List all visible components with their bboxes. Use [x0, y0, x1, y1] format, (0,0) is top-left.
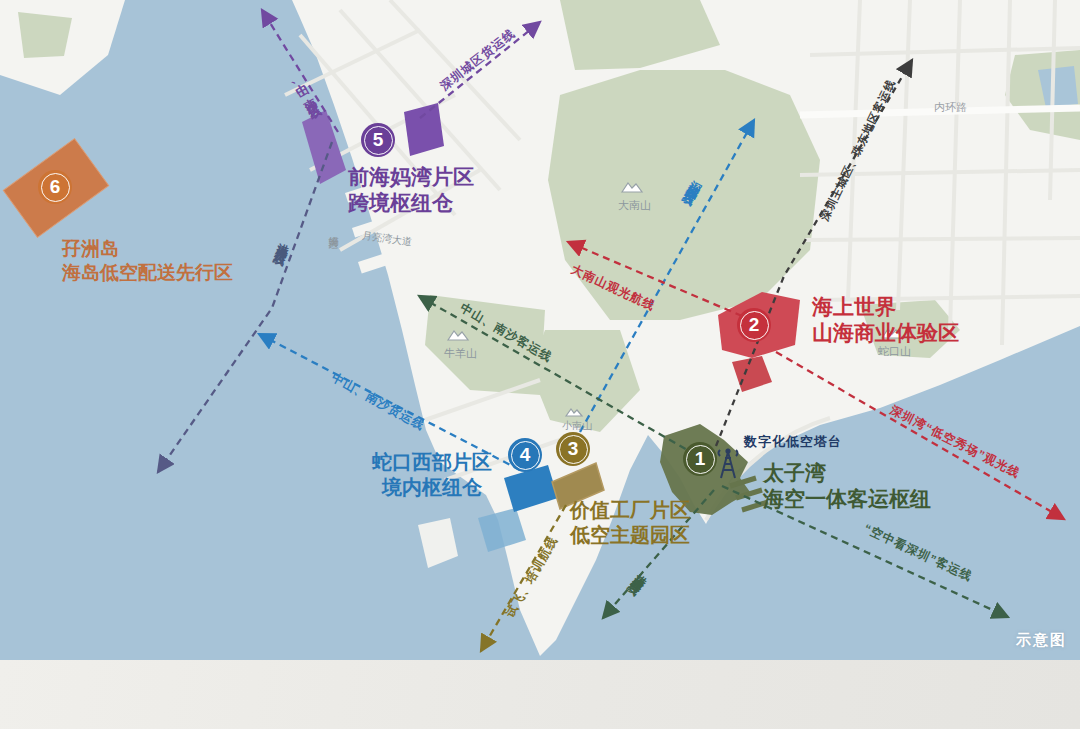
schematic-map: 1 2 3 4 5 6 太子湾 海空一体客运枢纽 海上世界 山海商业体验区 价值… [0, 0, 1080, 729]
map-label-niuyangshan: 牛羊山 [444, 346, 477, 361]
zone1-number: 1 [695, 448, 706, 470]
schematic-watermark: 示意图 [1016, 631, 1067, 650]
zone1-label-line1: 太子湾 [763, 460, 931, 486]
zone1-label: 太子湾 海空一体客运枢纽 [763, 460, 931, 512]
map-label-danangshan: 大南山 [618, 198, 651, 213]
map-label-xiaonanshan: 小南山 [562, 419, 592, 433]
footer-bar: △ 先导区发展布局蓝图 [0, 660, 1080, 729]
zone2-label-line2: 山海商业体验区 [812, 320, 959, 346]
zone4-label-line1: 蛇口西部片区 [372, 450, 492, 475]
zone4-label: 蛇口西部片区 境内枢纽仓 [372, 450, 492, 500]
zone1-label-line2: 海空一体客运枢纽 [763, 486, 931, 512]
zone3-number: 3 [568, 438, 579, 460]
digital-tower-label: 数字化低空塔台 [744, 433, 842, 451]
map-label-neihuanlu: 内环路 [934, 100, 967, 115]
zone5-label: 前海妈湾片区 跨境枢纽仓 [348, 164, 474, 216]
zone3-badge: 3 [556, 432, 590, 466]
zone4-badge: 4 [508, 438, 542, 472]
zone1-badge: 1 [683, 442, 717, 476]
island-topleft-green [18, 12, 72, 58]
map-label-shekoushan: 蛇口山 [878, 344, 911, 359]
zone2-number: 2 [749, 314, 760, 336]
zone6-label: 孖洲岛 海岛低空配送先行区 [62, 237, 233, 284]
zone3-label-line1: 价值工厂片区 [570, 498, 690, 523]
zone6-badge: 6 [38, 170, 72, 204]
zone5-number: 5 [373, 129, 384, 151]
zone2-label-line1: 海上世界 [812, 294, 959, 320]
zone6-label-line1: 孖洲岛 [62, 237, 233, 261]
zone3-label-line2: 低空主题园区 [570, 523, 690, 548]
zone2-label: 海上世界 山海商业体验区 [812, 294, 959, 346]
zone2-badge: 2 [737, 308, 771, 342]
zone5-badge: 5 [361, 123, 395, 157]
zone5-label-line2: 跨境枢纽仓 [348, 190, 474, 216]
zone6-label-line2: 海岛低空配送先行区 [62, 261, 233, 285]
zone3-label: 价值工厂片区 低空主题园区 [570, 498, 690, 548]
zone5-label-line1: 前海妈湾片区 [348, 164, 474, 190]
map-label-mawandadao: 妈湾大道 [326, 228, 340, 232]
zone4-label-line2: 境内枢纽仓 [372, 475, 492, 500]
zone4-number: 4 [520, 444, 531, 466]
map-area: 1 2 3 4 5 6 太子湾 海空一体客运枢纽 海上世界 山海商业体验区 价值… [0, 0, 1080, 660]
zone6-number: 6 [50, 176, 61, 198]
